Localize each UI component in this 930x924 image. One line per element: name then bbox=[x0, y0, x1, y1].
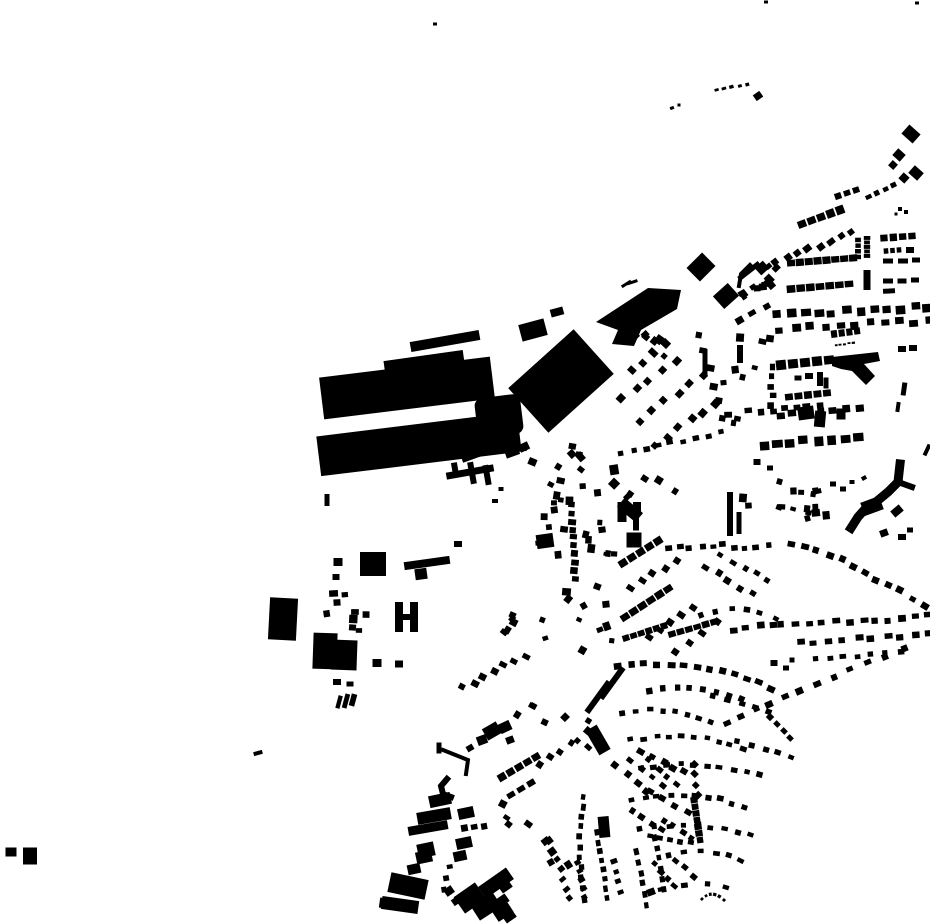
building bbox=[907, 528, 913, 533]
building bbox=[709, 893, 712, 897]
building bbox=[835, 344, 838, 346]
building bbox=[598, 526, 606, 533]
building bbox=[551, 500, 557, 505]
building bbox=[333, 679, 341, 685]
building bbox=[553, 491, 561, 500]
building bbox=[576, 833, 582, 839]
building bbox=[699, 686, 706, 693]
building bbox=[379, 898, 387, 909]
building bbox=[639, 879, 645, 886]
building bbox=[853, 433, 864, 442]
building bbox=[633, 518, 639, 531]
building bbox=[579, 483, 586, 489]
building bbox=[499, 487, 504, 491]
building bbox=[801, 308, 812, 316]
building bbox=[618, 502, 627, 522]
building bbox=[656, 854, 661, 860]
building bbox=[906, 247, 914, 253]
building bbox=[904, 210, 908, 214]
building bbox=[577, 855, 582, 860]
building bbox=[790, 658, 795, 663]
building bbox=[895, 213, 898, 216]
building bbox=[815, 283, 824, 290]
building bbox=[678, 104, 681, 107]
building bbox=[743, 606, 750, 612]
building bbox=[633, 502, 641, 512]
building bbox=[643, 795, 650, 800]
building bbox=[809, 640, 816, 646]
building bbox=[6, 848, 17, 857]
building bbox=[356, 628, 362, 633]
building bbox=[793, 404, 800, 410]
building bbox=[443, 875, 450, 881]
building bbox=[909, 345, 917, 351]
building bbox=[775, 327, 783, 334]
building bbox=[912, 613, 919, 619]
building bbox=[822, 511, 830, 520]
building bbox=[838, 344, 841, 346]
building bbox=[597, 848, 603, 855]
building bbox=[855, 654, 861, 659]
building bbox=[855, 243, 860, 248]
building bbox=[704, 735, 710, 740]
building bbox=[777, 621, 784, 628]
tiny-building bbox=[915, 2, 919, 5]
building bbox=[700, 543, 706, 549]
building bbox=[363, 611, 370, 618]
industrial-building bbox=[474, 393, 525, 438]
building bbox=[785, 393, 794, 400]
building bbox=[470, 824, 477, 830]
building bbox=[883, 259, 893, 264]
building bbox=[790, 487, 797, 494]
building bbox=[699, 347, 707, 354]
building bbox=[727, 492, 733, 536]
building bbox=[653, 662, 660, 669]
building bbox=[787, 259, 796, 266]
building bbox=[812, 356, 823, 366]
building bbox=[627, 736, 633, 741]
building bbox=[798, 490, 804, 495]
building bbox=[373, 659, 382, 667]
building bbox=[650, 764, 657, 770]
building bbox=[783, 666, 789, 671]
building-terrace-row bbox=[864, 236, 871, 258]
building bbox=[827, 656, 833, 661]
building bbox=[896, 634, 904, 641]
building bbox=[724, 412, 732, 418]
building bbox=[330, 640, 357, 671]
building bbox=[758, 409, 765, 416]
building bbox=[796, 258, 805, 266]
building bbox=[838, 637, 845, 643]
building bbox=[842, 305, 852, 314]
building bbox=[776, 412, 785, 419]
building bbox=[599, 858, 604, 864]
building bbox=[864, 241, 870, 245]
building bbox=[798, 435, 808, 444]
building bbox=[898, 279, 907, 284]
building bbox=[788, 359, 799, 369]
building bbox=[643, 446, 650, 453]
building bbox=[884, 633, 892, 639]
building bbox=[709, 692, 716, 699]
h-building bbox=[401, 614, 411, 620]
building bbox=[690, 797, 698, 804]
building bbox=[924, 612, 930, 618]
building bbox=[731, 365, 739, 373]
building bbox=[911, 278, 919, 283]
building bbox=[647, 833, 653, 838]
building bbox=[757, 621, 765, 628]
building bbox=[811, 509, 820, 517]
building bbox=[837, 409, 846, 420]
building bbox=[767, 466, 773, 471]
building bbox=[823, 389, 832, 396]
building bbox=[628, 661, 635, 668]
building bbox=[351, 609, 359, 615]
building bbox=[705, 881, 711, 886]
building bbox=[334, 558, 343, 566]
building bbox=[912, 631, 920, 638]
building bbox=[692, 810, 700, 817]
building bbox=[710, 544, 716, 549]
building bbox=[752, 544, 759, 550]
building bbox=[613, 663, 622, 670]
building bbox=[881, 319, 889, 326]
building bbox=[627, 533, 642, 548]
building bbox=[846, 619, 854, 626]
building bbox=[667, 837, 674, 843]
building bbox=[704, 764, 711, 770]
building bbox=[720, 380, 727, 386]
figure-ground-map bbox=[0, 0, 930, 924]
building bbox=[609, 638, 615, 644]
building bbox=[898, 259, 908, 264]
building bbox=[395, 661, 403, 668]
building bbox=[866, 635, 874, 642]
building bbox=[570, 542, 577, 548]
building bbox=[864, 236, 871, 240]
building bbox=[665, 545, 672, 551]
building bbox=[855, 404, 864, 412]
building bbox=[844, 280, 853, 287]
building bbox=[600, 866, 606, 872]
building bbox=[705, 795, 712, 802]
building bbox=[855, 249, 861, 254]
building bbox=[882, 306, 891, 314]
building bbox=[805, 373, 813, 379]
building bbox=[349, 624, 356, 631]
building bbox=[349, 615, 358, 624]
building bbox=[824, 378, 829, 389]
building bbox=[660, 708, 666, 714]
building bbox=[776, 360, 787, 371]
tiny-building bbox=[764, 1, 768, 4]
building bbox=[481, 823, 488, 830]
building bbox=[847, 342, 850, 344]
building bbox=[766, 335, 775, 343]
tiny-building bbox=[433, 23, 437, 26]
building bbox=[679, 662, 687, 668]
building bbox=[772, 440, 783, 448]
building bbox=[329, 590, 338, 597]
building bbox=[786, 285, 795, 293]
building bbox=[792, 324, 801, 332]
building bbox=[578, 823, 583, 829]
building bbox=[581, 794, 586, 800]
building bbox=[826, 310, 834, 317]
building bbox=[680, 849, 687, 854]
building bbox=[568, 511, 575, 517]
building bbox=[341, 592, 348, 598]
building bbox=[818, 620, 825, 626]
building bbox=[813, 257, 822, 265]
building bbox=[741, 625, 749, 631]
building bbox=[535, 540, 541, 545]
building bbox=[770, 393, 777, 398]
building bbox=[791, 621, 799, 627]
building bbox=[767, 384, 774, 390]
building bbox=[797, 638, 805, 644]
building bbox=[668, 662, 676, 668]
building bbox=[884, 618, 891, 624]
h-building bbox=[410, 602, 418, 632]
building bbox=[822, 256, 831, 264]
building bbox=[849, 254, 858, 262]
building bbox=[550, 506, 558, 514]
building bbox=[822, 324, 830, 331]
building bbox=[835, 281, 844, 288]
building bbox=[898, 615, 906, 622]
building bbox=[554, 551, 561, 559]
building bbox=[715, 765, 722, 770]
building bbox=[647, 707, 653, 712]
building bbox=[640, 660, 647, 666]
building bbox=[838, 329, 845, 337]
building bbox=[812, 504, 818, 510]
building bbox=[860, 617, 868, 623]
building bbox=[672, 708, 678, 714]
building bbox=[347, 682, 354, 687]
building bbox=[922, 304, 930, 313]
building bbox=[864, 250, 870, 254]
building bbox=[731, 545, 738, 551]
building bbox=[871, 617, 878, 624]
building bbox=[681, 882, 688, 888]
building bbox=[688, 839, 695, 845]
building bbox=[679, 761, 684, 766]
building bbox=[734, 738, 740, 744]
building bbox=[730, 627, 738, 633]
building bbox=[883, 248, 888, 254]
building bbox=[857, 307, 866, 316]
building bbox=[696, 837, 703, 844]
building bbox=[268, 597, 298, 640]
building bbox=[840, 255, 849, 262]
building bbox=[890, 248, 895, 254]
building bbox=[909, 320, 918, 327]
building bbox=[760, 441, 770, 450]
building bbox=[855, 238, 861, 243]
building bbox=[843, 343, 846, 345]
building bbox=[867, 651, 873, 657]
building bbox=[594, 829, 600, 836]
building bbox=[867, 318, 875, 325]
building bbox=[908, 232, 916, 239]
building bbox=[571, 559, 579, 566]
building bbox=[693, 817, 700, 824]
building bbox=[23, 848, 37, 865]
building bbox=[360, 552, 386, 576]
building bbox=[804, 258, 813, 266]
building bbox=[333, 599, 340, 606]
building bbox=[830, 482, 836, 487]
building bbox=[677, 839, 684, 845]
building bbox=[767, 402, 774, 409]
building bbox=[911, 302, 920, 310]
building bbox=[660, 685, 666, 692]
building bbox=[898, 207, 902, 211]
building bbox=[912, 258, 920, 263]
building bbox=[804, 505, 811, 513]
building bbox=[597, 520, 602, 526]
building bbox=[729, 606, 735, 611]
building-row bbox=[335, 693, 357, 709]
building bbox=[691, 803, 699, 810]
building bbox=[694, 823, 702, 830]
building bbox=[594, 489, 601, 497]
building bbox=[787, 308, 797, 317]
building bbox=[828, 407, 836, 414]
building bbox=[841, 435, 851, 444]
building bbox=[870, 305, 879, 313]
building bbox=[814, 411, 826, 428]
building bbox=[883, 288, 895, 294]
building bbox=[695, 830, 703, 837]
building bbox=[889, 233, 897, 241]
building bbox=[698, 849, 704, 853]
building bbox=[817, 372, 823, 386]
building bbox=[604, 895, 609, 901]
building bbox=[636, 826, 642, 832]
figure-ground-map-page bbox=[0, 0, 930, 924]
building bbox=[560, 526, 568, 533]
building bbox=[333, 574, 340, 580]
building bbox=[437, 743, 442, 754]
building bbox=[566, 497, 574, 506]
building bbox=[898, 534, 906, 540]
building bbox=[619, 710, 626, 716]
building bbox=[864, 254, 870, 258]
building bbox=[800, 358, 811, 368]
building bbox=[795, 376, 802, 381]
building bbox=[541, 513, 548, 520]
building bbox=[895, 305, 905, 314]
building bbox=[587, 544, 595, 554]
building bbox=[691, 735, 697, 740]
building bbox=[898, 346, 906, 352]
building bbox=[837, 322, 846, 329]
building bbox=[605, 550, 611, 557]
building bbox=[899, 233, 907, 240]
building bbox=[814, 309, 824, 317]
building bbox=[675, 684, 680, 690]
building bbox=[572, 576, 579, 582]
building bbox=[895, 317, 904, 324]
building bbox=[831, 330, 838, 338]
building bbox=[831, 256, 840, 263]
building bbox=[839, 654, 846, 659]
building bbox=[617, 450, 623, 456]
building bbox=[325, 494, 330, 506]
building bbox=[686, 685, 692, 691]
building bbox=[715, 397, 723, 404]
building bbox=[709, 383, 718, 391]
building bbox=[460, 824, 468, 832]
building bbox=[852, 342, 855, 344]
building bbox=[706, 666, 714, 674]
building bbox=[454, 541, 462, 547]
building bbox=[802, 403, 810, 409]
building bbox=[631, 447, 637, 453]
building bbox=[813, 390, 822, 398]
building bbox=[706, 364, 715, 372]
building bbox=[813, 656, 819, 662]
building bbox=[595, 840, 601, 847]
building bbox=[646, 687, 653, 694]
building bbox=[546, 524, 552, 530]
building bbox=[745, 503, 752, 509]
building bbox=[492, 499, 498, 503]
building bbox=[825, 638, 833, 644]
building bbox=[806, 621, 813, 627]
building bbox=[827, 435, 836, 445]
building bbox=[883, 279, 893, 284]
building bbox=[742, 546, 748, 551]
building bbox=[796, 284, 805, 292]
building bbox=[695, 332, 702, 339]
building bbox=[806, 283, 815, 291]
building bbox=[707, 825, 713, 830]
building bbox=[681, 793, 687, 798]
building bbox=[581, 804, 587, 811]
building bbox=[817, 402, 824, 408]
building bbox=[744, 407, 752, 413]
building bbox=[694, 664, 702, 671]
building bbox=[814, 436, 824, 446]
building bbox=[855, 634, 863, 641]
building bbox=[685, 545, 692, 551]
building bbox=[678, 733, 685, 738]
building bbox=[864, 270, 871, 290]
building bbox=[896, 247, 901, 253]
building bbox=[737, 345, 743, 363]
building bbox=[570, 567, 578, 574]
building bbox=[925, 316, 930, 324]
building bbox=[681, 823, 686, 828]
building bbox=[633, 709, 639, 714]
building bbox=[854, 327, 861, 335]
building bbox=[570, 534, 578, 540]
building bbox=[571, 550, 579, 557]
building bbox=[654, 845, 660, 851]
building bbox=[781, 405, 788, 411]
building bbox=[602, 601, 610, 608]
building bbox=[785, 439, 795, 448]
building bbox=[739, 493, 747, 502]
building bbox=[812, 487, 819, 493]
